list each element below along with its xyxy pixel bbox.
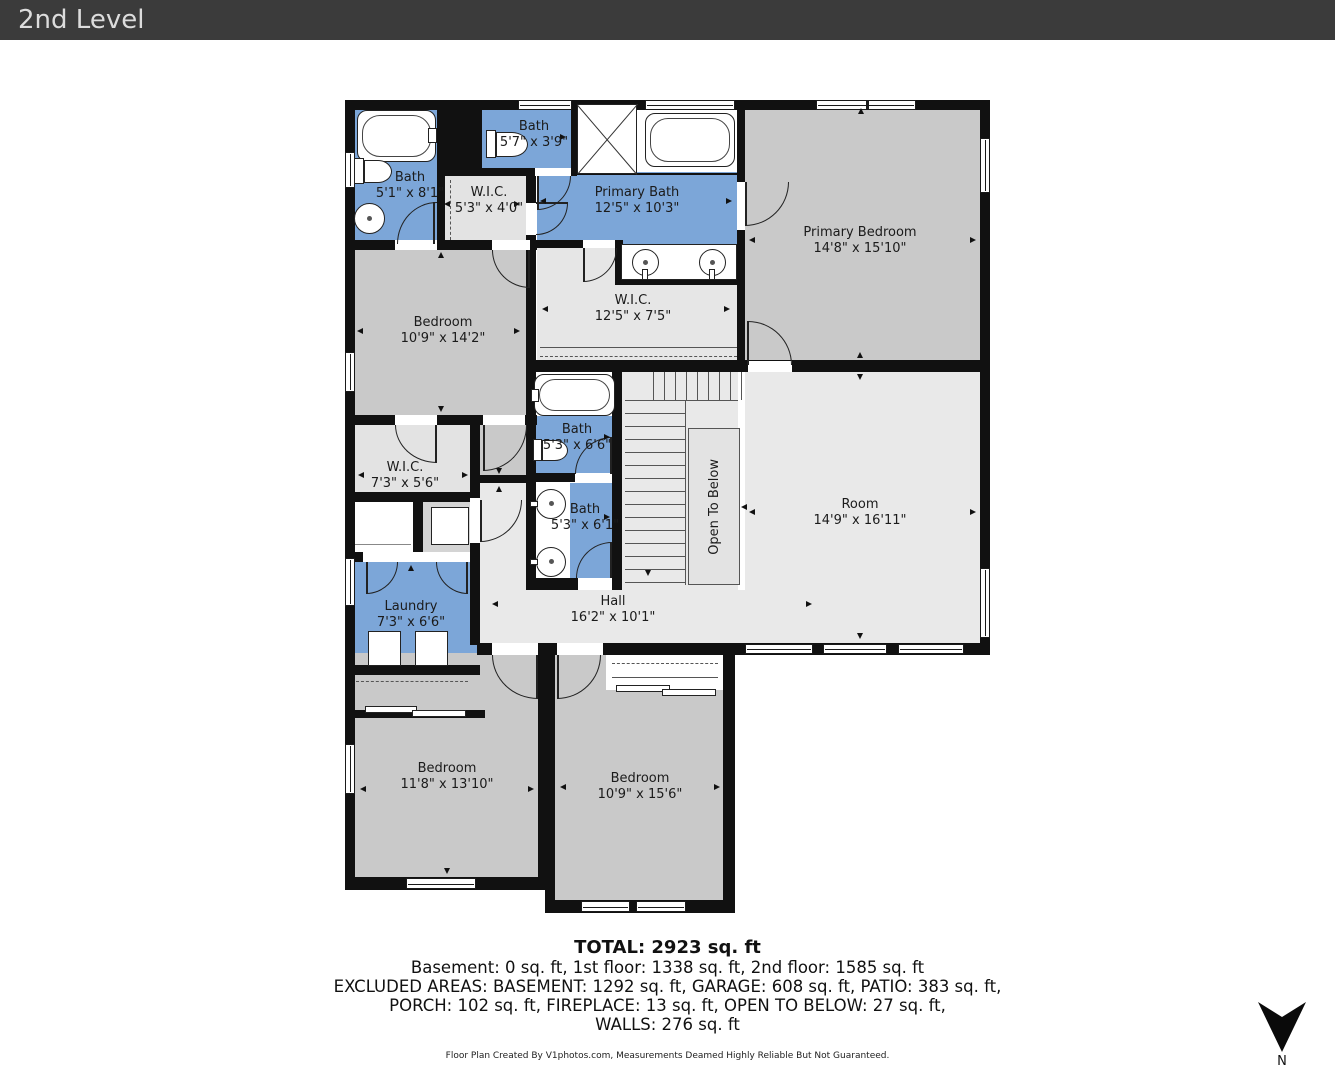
dimension-arrow	[749, 509, 755, 515]
door-opening	[575, 473, 612, 482]
room-label-wic-small: W.I.C. 5'3" x 4'0"	[455, 185, 523, 217]
dimension-arrow	[514, 328, 520, 334]
closet-shelf-line	[354, 544, 411, 545]
wall	[345, 665, 480, 675]
sink-drain-icon	[643, 260, 648, 265]
door-opening	[535, 168, 571, 176]
stair-tread	[625, 569, 685, 570]
closet-chase-box	[431, 507, 469, 545]
stair-tread	[625, 426, 685, 427]
sliding-door-panel	[662, 689, 716, 696]
stair-tread	[625, 478, 685, 479]
room-label-bath-middle-upper: Bath 5'3" x 6'6"	[543, 422, 611, 454]
room-dims: 14'9" x 16'11"	[814, 513, 907, 529]
wall	[737, 100, 745, 365]
dimension-arrow	[444, 201, 450, 207]
room-dims: 10'9" x 14'2"	[401, 331, 486, 347]
sink-drain-icon	[367, 216, 372, 221]
window	[345, 352, 355, 392]
room-dims: 5'3" x 4'0"	[455, 201, 523, 217]
dimension-arrow	[724, 306, 730, 312]
faucet-icon	[642, 269, 648, 280]
window	[406, 878, 476, 889]
toilet-tank-icon	[354, 158, 364, 184]
door-leaf	[747, 321, 749, 365]
door-leaf	[583, 248, 585, 282]
room-dims: 5'7" x 3'9"	[500, 135, 568, 151]
toilet-tank-icon	[533, 439, 542, 461]
sink-drain-icon	[549, 559, 554, 564]
dimension-arrow	[857, 352, 863, 358]
sink-drain-icon	[710, 260, 715, 265]
room-dims: 16'2" x 10'1"	[571, 610, 656, 626]
excluded-areas-text-3: WALLS: 276 sq. ft	[0, 1015, 1335, 1034]
room-dims: 11'8" x 13'10"	[401, 777, 494, 793]
stair-tread	[625, 439, 685, 440]
stair-tread	[708, 372, 709, 400]
room-label-bedroom-upper-left: Bedroom 10'9" x 14'2"	[401, 315, 486, 347]
stair-tread	[625, 413, 685, 414]
room-label-wic-primary: W.I.C. 12'5" x 7'5"	[595, 293, 671, 325]
stair-tread	[719, 372, 720, 400]
stair-tread	[686, 372, 687, 400]
total-area-text: TOTAL: 2923 sq. ft	[0, 938, 1335, 958]
dimension-arrow	[360, 786, 366, 792]
dimension-arrow	[444, 868, 450, 874]
closet-shelf-line	[612, 677, 718, 678]
door-opening	[737, 182, 745, 230]
dimension-arrow	[496, 486, 502, 492]
dimension-arrow	[408, 565, 414, 571]
dimension-arrow	[970, 509, 976, 515]
room-label-bath-top: Bath 5'7" x 3'9"	[500, 119, 568, 151]
dimension-arrow	[492, 601, 498, 607]
dimension-arrow	[528, 786, 534, 792]
door-opening	[526, 203, 536, 235]
dimension-arrow	[357, 328, 363, 334]
stair-tread	[625, 517, 685, 518]
room-label-primary-bath: Primary Bath 12'5" x 10'3"	[595, 185, 680, 217]
dimension-arrow	[496, 468, 502, 474]
door-leaf	[466, 562, 468, 594]
dimension-arrow	[560, 784, 566, 790]
dimension-arrow	[857, 374, 863, 380]
room-dims: 12'5" x 10'3"	[595, 201, 680, 217]
door-leaf	[536, 655, 538, 699]
stair-tread	[625, 465, 685, 466]
page-title: 2nd Level	[18, 0, 144, 40]
door-leaf	[366, 562, 368, 594]
stair-tread	[625, 543, 685, 544]
stair-tread	[625, 452, 685, 453]
window	[745, 644, 813, 654]
excluded-areas-text-1: EXCLUDED AREAS: BASEMENT: 1292 sq. ft, G…	[0, 977, 1335, 996]
room-dims: 10'9" x 15'6"	[598, 787, 683, 803]
sliding-door-panel	[365, 706, 417, 713]
toilet-tank-icon	[486, 130, 496, 158]
dimension-arrow	[806, 601, 812, 607]
faucet-icon	[709, 269, 715, 280]
closet-rod-dashed	[540, 356, 737, 357]
room-label-bedroom-bottom-left: Bedroom 11'8" x 13'10"	[401, 761, 494, 793]
excluded-areas-text-2: PORCH: 102 sq. ft, FIREPLACE: 13 sq. ft,…	[0, 996, 1335, 1015]
bathtub-icon	[534, 374, 615, 416]
closet-rod-dashed	[612, 663, 718, 664]
stair-tread	[625, 504, 685, 505]
disclaimer-text: Floor Plan Created By V1photos.com, Meas…	[0, 1051, 1335, 1061]
room-label-bath-middle-lower: Bath 5'3" x 6'1"	[551, 502, 619, 534]
room-dims: 7'3" x 6'6"	[377, 615, 445, 631]
open-to-below-label: Open To Below	[707, 459, 722, 555]
door-leaf	[745, 182, 747, 226]
door-leaf	[435, 425, 437, 463]
stair-tread	[697, 372, 698, 400]
title-bar: 2nd Level	[0, 0, 1335, 40]
room-name: Bath	[500, 119, 568, 135]
room-name: Bath	[551, 502, 619, 518]
closet-rod-dashed	[450, 180, 451, 240]
dimension-arrow	[858, 108, 864, 114]
stair-tread	[730, 372, 731, 400]
room-label-bath-ensuite-left: Bath 5'1" x 8'1"	[376, 170, 444, 202]
room-label-primary-bedroom: Primary Bedroom 14'8" x 15'10"	[803, 225, 916, 257]
window	[636, 901, 686, 912]
room-label-bedroom-bottom-right: Bedroom 10'9" x 15'6"	[598, 771, 683, 803]
door-opening	[578, 578, 612, 590]
window	[518, 100, 572, 110]
room-name: Laundry	[377, 599, 445, 615]
north-arrow-icon	[1258, 1002, 1306, 1052]
bathtub-icon	[357, 110, 436, 162]
door-opening	[583, 240, 615, 248]
north-label: N	[1258, 1054, 1306, 1069]
dimension-arrow	[540, 198, 546, 204]
window	[345, 558, 355, 606]
stair-tread	[625, 530, 685, 531]
dimension-arrow	[726, 198, 732, 204]
compass: N	[1258, 1002, 1306, 1074]
faucet-icon	[428, 128, 437, 143]
closet-shelf-line	[540, 347, 737, 348]
room-label-room: Room 14'9" x 16'11"	[814, 497, 907, 529]
washer-icon	[368, 631, 401, 666]
dimension-arrow	[438, 252, 444, 258]
dimension-arrow	[741, 504, 747, 510]
door-leaf	[480, 500, 482, 542]
door-opening	[363, 552, 470, 562]
room-name: W.I.C.	[455, 185, 523, 201]
room-name: Primary Bath	[595, 185, 680, 201]
dimension-arrow	[749, 237, 755, 243]
room-name: Bedroom	[401, 761, 494, 777]
faucet-icon	[530, 501, 538, 507]
area-summary: TOTAL: 2923 sq. ft Basement: 0 sq. ft, 1…	[0, 938, 1335, 1061]
stair-tread	[625, 582, 685, 583]
sliding-door-panel	[412, 710, 466, 717]
stair-tread	[625, 491, 685, 492]
dimension-arrow	[438, 406, 444, 412]
closet-rod-dashed	[356, 681, 468, 682]
dimension-arrow	[857, 633, 863, 639]
room-name: Bath	[543, 422, 611, 438]
dimension-arrow	[462, 472, 468, 478]
dimension-arrow	[714, 784, 720, 790]
open-to-below-area: Open To Below	[688, 428, 740, 585]
stair-tread	[625, 556, 685, 557]
wall	[723, 653, 735, 913]
window	[898, 644, 964, 654]
window	[645, 100, 735, 110]
stair-tread	[664, 372, 665, 400]
door-opening	[395, 415, 437, 425]
wall	[345, 492, 480, 502]
faucet-icon	[531, 389, 539, 402]
door-leaf	[433, 202, 435, 244]
room-label-hall: Hall 16'2" x 10'1"	[571, 594, 656, 626]
room-name: W.I.C.	[371, 460, 439, 476]
window	[581, 901, 630, 912]
door-leaf	[483, 425, 485, 471]
door-opening	[470, 498, 480, 543]
window	[823, 644, 887, 654]
door-opening	[557, 643, 603, 655]
wall	[538, 653, 555, 877]
faucet-icon	[530, 559, 538, 565]
room-name: Room	[814, 497, 907, 513]
door-opening	[492, 643, 538, 655]
door-leaf	[557, 655, 559, 699]
window	[980, 568, 990, 638]
room-label-laundry: Laundry 7'3" x 6'6"	[377, 599, 445, 631]
room-name: Bedroom	[401, 315, 486, 331]
room-dims: 14'8" x 15'10"	[803, 241, 916, 257]
stair-tread	[675, 372, 676, 400]
door-opening	[483, 415, 525, 425]
floors-area-text: Basement: 0 sq. ft, 1st floor: 1338 sq. …	[0, 958, 1335, 977]
room-dims: 12'5" x 7'5"	[595, 309, 671, 325]
stair-tread	[741, 372, 742, 400]
door-leaf	[528, 250, 530, 288]
room-dims: 5'3" x 6'1"	[551, 518, 619, 534]
stair-landing-line	[625, 400, 738, 401]
room-dims: 5'3" x 6'6"	[543, 438, 611, 454]
window	[980, 138, 990, 193]
stair-flight-divider	[685, 400, 686, 585]
bathtub-icon	[645, 113, 735, 167]
room-dims: 5'1" x 8'1"	[376, 186, 444, 202]
wall	[413, 502, 423, 552]
dimension-arrow	[358, 472, 364, 478]
dimension-arrow	[970, 237, 976, 243]
room-dims: 7'3" x 5'6"	[371, 476, 439, 492]
door-leaf	[610, 542, 612, 578]
room-name: Bath	[376, 170, 444, 186]
room-name: Bedroom	[598, 771, 683, 787]
dimension-arrow	[542, 306, 548, 312]
stair-direction-arrow	[645, 570, 651, 576]
dryer-icon	[415, 631, 448, 666]
room-name: Hall	[571, 594, 656, 610]
window	[345, 744, 355, 794]
room-name: W.I.C.	[595, 293, 671, 309]
floor-plan-page: 2nd Level Open To Below	[0, 0, 1335, 1080]
stair-tread	[653, 372, 654, 400]
window	[816, 100, 916, 110]
room-label-wic-left: W.I.C. 7'3" x 5'6"	[371, 460, 439, 492]
door-opening	[492, 240, 530, 250]
room-name: Primary Bedroom	[803, 225, 916, 241]
